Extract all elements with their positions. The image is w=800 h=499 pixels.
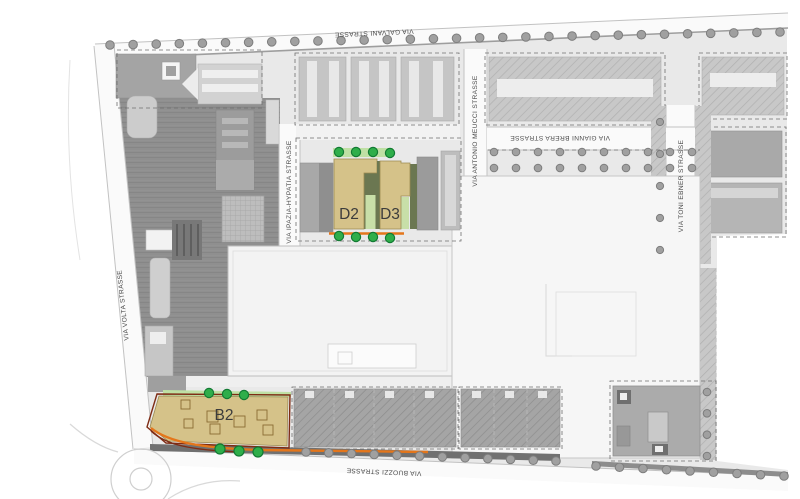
tree-icon bbox=[578, 148, 586, 156]
tree-icon bbox=[683, 29, 692, 38]
street-label-meucci: VIA ANTONIO MEUCCI STRASSE bbox=[472, 75, 479, 186]
tree-icon bbox=[686, 467, 695, 476]
tree-icon bbox=[302, 448, 311, 457]
tree-icon bbox=[568, 32, 577, 41]
street-label-brera: VIA GIANNI BRERA STRASSE bbox=[510, 134, 610, 141]
tree-icon bbox=[347, 449, 356, 458]
tree-icon bbox=[637, 30, 646, 39]
building-d2[interactable]: D2 bbox=[334, 159, 377, 229]
tree-icon bbox=[615, 463, 624, 472]
tree-icon bbox=[324, 449, 333, 458]
tree-icon bbox=[253, 447, 263, 457]
tree-icon bbox=[644, 164, 652, 172]
tree-icon bbox=[506, 455, 515, 464]
tree-icon bbox=[368, 147, 377, 156]
tree-icon bbox=[614, 31, 623, 40]
tree-icon bbox=[703, 431, 711, 439]
building-block-northeast bbox=[485, 53, 787, 125]
tree-icon bbox=[221, 38, 230, 47]
tree-icon bbox=[334, 147, 343, 156]
tree-icon bbox=[368, 232, 377, 241]
site-plan: D2 D3 B2 bbox=[0, 0, 800, 499]
tree-icon bbox=[152, 40, 161, 49]
tree-icon bbox=[490, 148, 498, 156]
tree-icon bbox=[314, 37, 323, 46]
tree-icon bbox=[175, 39, 184, 48]
tree-icon bbox=[106, 41, 115, 50]
parking-curves-west bbox=[68, 60, 80, 260]
tree-icon bbox=[129, 40, 138, 49]
tree-icon bbox=[215, 444, 225, 454]
tree-icon bbox=[556, 148, 564, 156]
tree-icon bbox=[656, 150, 663, 157]
tree-icon bbox=[703, 388, 711, 396]
tree-icon bbox=[415, 452, 424, 461]
tree-icon bbox=[429, 34, 438, 43]
tree-icon bbox=[729, 29, 738, 38]
tree-icon bbox=[709, 468, 718, 477]
tree-icon bbox=[706, 29, 715, 38]
tree-icon bbox=[385, 233, 394, 242]
tree-icon bbox=[239, 390, 248, 399]
tree-icon bbox=[592, 462, 601, 471]
building-row-north-central bbox=[295, 53, 459, 125]
building-d3[interactable]: D3 bbox=[377, 161, 417, 229]
tree-icon bbox=[644, 148, 652, 156]
tree-icon bbox=[534, 164, 542, 172]
street-label-ipazia: VIA IPAZIA-HYPATIA STRASSE bbox=[286, 140, 293, 244]
tree-icon bbox=[204, 388, 213, 397]
building-b2-label: B2 bbox=[215, 407, 234, 424]
tree-icon bbox=[552, 457, 561, 466]
building-d3-label: D3 bbox=[380, 206, 400, 223]
tree-icon bbox=[776, 28, 785, 37]
tree-icon bbox=[475, 34, 484, 43]
tree-icon bbox=[733, 469, 742, 478]
tree-icon bbox=[545, 32, 554, 41]
tree-icon bbox=[656, 118, 663, 125]
tree-icon bbox=[498, 33, 507, 42]
tree-icon bbox=[406, 35, 415, 44]
tree-icon bbox=[334, 231, 343, 240]
tree-icon bbox=[198, 39, 207, 48]
building-row-south bbox=[292, 387, 562, 449]
tree-icon bbox=[291, 37, 300, 46]
tree-icon bbox=[383, 35, 392, 44]
tree-icon bbox=[529, 456, 538, 465]
tree-icon bbox=[688, 148, 696, 156]
tree-icon bbox=[666, 164, 674, 172]
tree-icon bbox=[622, 164, 630, 172]
tree-icon bbox=[662, 465, 671, 474]
tree-icon bbox=[351, 147, 360, 156]
tree-icon bbox=[622, 148, 630, 156]
tree-icon bbox=[656, 214, 663, 221]
tree-icon bbox=[393, 451, 402, 460]
tree-icon bbox=[267, 38, 276, 47]
building-central-white bbox=[228, 246, 452, 376]
tree-icon bbox=[703, 452, 711, 460]
tree-icon bbox=[484, 454, 493, 463]
tree-icon bbox=[490, 164, 498, 172]
tree-icon bbox=[351, 232, 360, 241]
tree-icon bbox=[756, 470, 765, 479]
tree-icon bbox=[753, 28, 762, 37]
tree-icon bbox=[656, 182, 663, 189]
tree-icon bbox=[688, 164, 696, 172]
tree-icon bbox=[244, 38, 253, 47]
tree-icon bbox=[666, 148, 674, 156]
tree-icon bbox=[522, 33, 531, 42]
tree-icon bbox=[656, 246, 663, 253]
tree-icon bbox=[512, 148, 520, 156]
tree-icon bbox=[234, 446, 244, 456]
building-b2[interactable]: B2 bbox=[147, 390, 291, 448]
tree-icon bbox=[600, 148, 608, 156]
tree-icon bbox=[385, 148, 394, 157]
tree-icon bbox=[660, 30, 669, 39]
tree-icon bbox=[370, 450, 379, 459]
street-label-ebner: VIA TONI EBNER STRASSE bbox=[678, 140, 685, 233]
tree-icon bbox=[703, 410, 711, 418]
tree-icon bbox=[591, 31, 600, 40]
tree-icon bbox=[600, 164, 608, 172]
tree-icon bbox=[461, 453, 470, 462]
tree-icon bbox=[452, 34, 461, 43]
tree-icon bbox=[222, 389, 231, 398]
tree-icon bbox=[639, 464, 648, 473]
tree-icon bbox=[512, 164, 520, 172]
tree-icon bbox=[534, 148, 542, 156]
tree-icon bbox=[556, 164, 564, 172]
building-southeast bbox=[610, 381, 716, 461]
tree-icon bbox=[780, 472, 789, 481]
tree-icon bbox=[578, 164, 586, 172]
building-d2-label: D2 bbox=[339, 206, 359, 223]
tree-icon bbox=[438, 453, 447, 462]
